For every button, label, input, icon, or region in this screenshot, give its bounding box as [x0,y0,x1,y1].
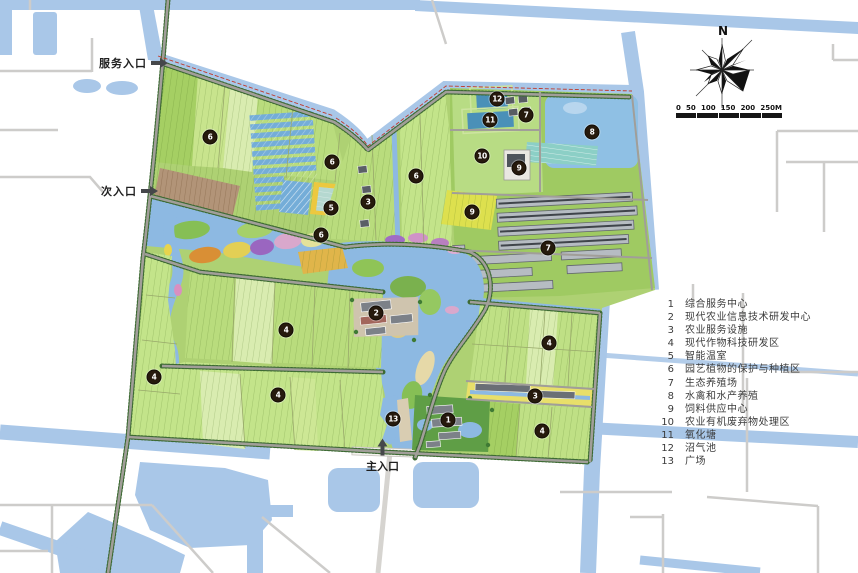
map-marker[interactable]: 11 [483,113,498,128]
map-marker[interactable]: 3 [361,195,376,210]
map-marker[interactable]: 1 [441,413,456,428]
map-marker[interactable]: 6 [325,155,340,170]
legend-item: 5 智能温室 [660,350,811,363]
legend-item: 7 生态养殖场 [660,377,811,390]
legend-item: 10 农业有机废弃物处理区 [660,416,811,429]
main-entrance-label: 主入口 [366,452,399,474]
legend-item-label: 沼气池 [685,442,717,455]
legend-item-number: 4 [660,337,674,350]
legend-item-number: 1 [660,298,674,311]
legend-item-label: 氧化塘 [685,429,717,442]
map-marker[interactable]: 3 [528,389,543,404]
map-marker[interactable]: 4 [271,388,286,403]
scale-bar: 050100150200250M [676,104,782,118]
compass-rose: N [682,24,762,116]
legend-item-label: 现代农业信息技术研发中心 [685,311,811,324]
legend-item: 1 综合服务中心 [660,298,811,311]
legend-item: 11 氧化塘 [660,429,811,442]
right-arrow-icon [151,61,160,65]
compass-star-icon [682,30,762,114]
scale-label: 0 [676,104,681,112]
legend-item: 4 现代作物科技研发区 [660,337,811,350]
map-marker[interactable]: 9 [512,161,527,176]
legend-item-label: 饲料供应中心 [685,403,748,416]
scale-label: 50 [686,104,696,112]
up-arrow-icon [381,447,385,456]
map-marker[interactable]: 4 [147,370,162,385]
scale-label: 200 [741,104,756,112]
map-marker[interactable]: 2 [369,306,384,321]
map-marker[interactable]: 7 [519,108,534,123]
map-marker[interactable]: 10 [475,149,490,164]
legend-item-number: 13 [660,455,674,468]
scale-bar-segments [676,113,782,118]
legend-item-label: 智能温室 [685,350,727,363]
scale-labels: 050100150200250M [676,104,782,112]
secondary-entrance-label: 次入口 [101,183,150,199]
secondary-entrance-text: 次入口 [101,183,137,199]
legend-item-number: 7 [660,377,674,390]
legend-item: 12 沼气池 [660,442,811,455]
legend-item-label: 园艺植物的保护与种植区 [685,363,801,376]
map-marker[interactable]: 6 [203,130,218,145]
map-marker[interactable]: 9 [465,205,480,220]
scale-label: 150 [721,104,736,112]
map-marker[interactable]: 12 [490,92,505,107]
scale-label: 100 [701,104,716,112]
map-marker[interactable]: 6 [314,228,329,243]
right-arrow-icon [141,189,150,193]
service-entrance-label: 服务入口 [99,55,160,71]
legend-item: 2 现代农业信息技术研发中心 [660,311,811,324]
legend-item-number: 9 [660,403,674,416]
map-marker[interactable]: 4 [535,424,550,439]
legend-item-label: 农业服务设施 [685,324,748,337]
research-center [350,292,422,342]
legend-item-label: 水禽和水产养殖 [685,390,759,403]
map-marker[interactable]: 6 [409,169,424,184]
legend-item-number: 10 [660,416,674,429]
legend-item-label: 现代作物科技研发区 [685,337,780,350]
legend-item-number: 8 [660,390,674,403]
map-marker[interactable]: 8 [585,125,600,140]
map-marker[interactable]: 13 [386,412,401,427]
legend-item-label: 农业有机废弃物处理区 [685,416,790,429]
legend-item: 6 园艺植物的保护与种植区 [660,363,811,376]
legend-item-number: 2 [660,311,674,324]
scale-label: 250M [760,104,782,112]
main-entrance-text: 主入口 [366,458,399,474]
legend-item-label: 综合服务中心 [685,298,748,311]
legend-item: 13 广场 [660,455,811,468]
legend-item-number: 3 [660,324,674,337]
map-marker[interactable]: 5 [324,201,339,216]
legend-item: 8 水禽和水产养殖 [660,390,811,403]
legend-item-number: 5 [660,350,674,363]
legend-item: 9 饲料供应中心 [660,403,811,416]
site-plan-map: 6 6 6 3 5 6 12 [0,0,858,573]
legend-item-label: 生态养殖场 [685,377,738,390]
service-entrance-text: 服务入口 [99,55,147,71]
legend-item: 3 农业服务设施 [660,324,811,337]
legend-item-label: 广场 [685,455,706,468]
map-marker[interactable]: 4 [279,323,294,338]
map-marker[interactable]: 4 [542,336,557,351]
legend-item-number: 11 [660,429,674,442]
map-marker[interactable]: 7 [541,241,556,256]
legend: 1 综合服务中心 2 现代农业信息技术研发中心 3 农业服务设施 4 现代作物科… [660,298,811,468]
legend-item-number: 6 [660,363,674,376]
legend-item-number: 12 [660,442,674,455]
